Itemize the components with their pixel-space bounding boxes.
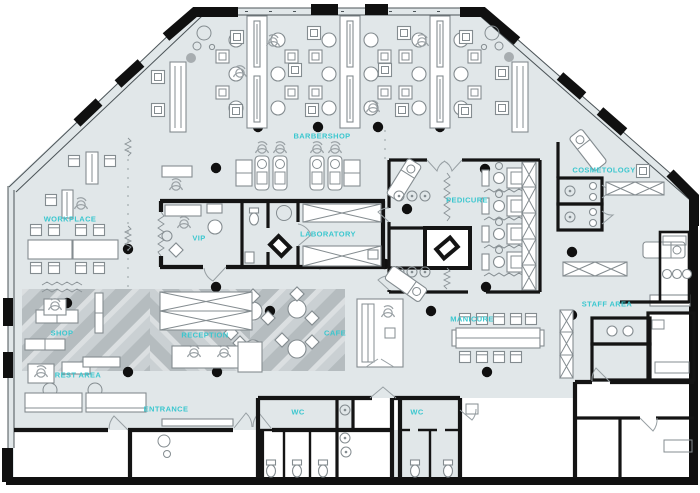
room-label-barbershop: BARBERSHOP — [293, 132, 350, 141]
room-label-cosmetology: COSMETOLOGY — [572, 166, 635, 175]
room-label-manicure: MANICURE — [450, 315, 493, 324]
room-label-wc-right: WC — [410, 408, 423, 417]
floor-plan-drawing — [0, 0, 700, 493]
room-label-laboratory: LABORATORY — [300, 230, 356, 239]
room-label-cafe: CAFE — [324, 329, 346, 338]
room-label-staff-area: STAFF AREA — [582, 300, 632, 309]
room-label-entrance: ENTRANCE — [144, 405, 189, 414]
room-label-reception: RECEPTION — [181, 331, 228, 340]
salon-floor-plan: BARBERSHOP WORKPLACE VIP LABORATORY PEDI… — [0, 0, 700, 493]
room-label-pedicure: PEDICURE — [446, 196, 488, 205]
room-label-rest-area: REST AREA — [55, 371, 101, 380]
room-label-workplace: WORKPLACE — [44, 215, 97, 224]
room-label-vip: VIP — [192, 234, 205, 243]
room-label-wc-left: WC — [291, 408, 304, 417]
room-label-shop: SHOP — [51, 329, 74, 338]
